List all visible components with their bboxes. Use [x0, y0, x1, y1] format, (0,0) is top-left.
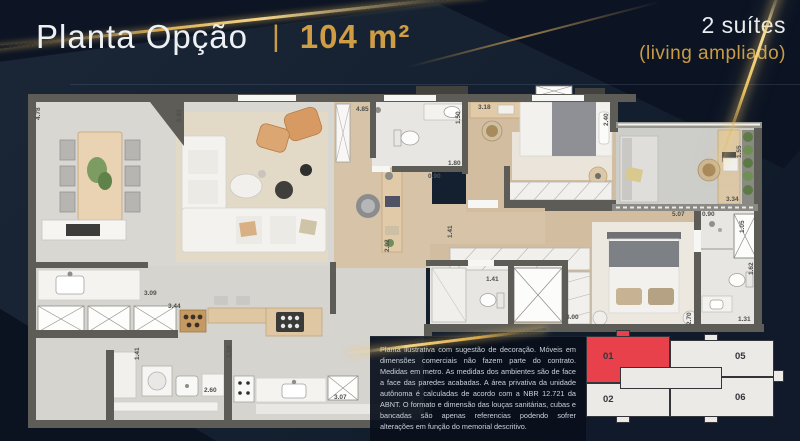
- page: Planta Opção | 104 m² 2 suítes (living a…: [0, 0, 800, 441]
- stove: [234, 376, 254, 402]
- keyplan-core: [620, 367, 722, 389]
- dim-label: 1.41: [134, 347, 141, 360]
- dim-label: 1.50: [455, 111, 462, 124]
- unit-label: 02: [603, 394, 614, 405]
- stool: [214, 296, 228, 305]
- dim-label: 3.34: [726, 196, 739, 203]
- sink: [710, 300, 723, 309]
- toilet: [729, 274, 745, 287]
- laptop: [385, 196, 400, 207]
- unit-label: 05: [735, 351, 746, 362]
- pillow: [648, 288, 674, 305]
- counter: [110, 402, 218, 411]
- tv-sideboard: [42, 220, 126, 240]
- nightstand: [593, 311, 607, 325]
- dim-label: 1.41: [486, 276, 499, 283]
- disclaimer-text: Planta ilustrativa com sugestão de decor…: [380, 345, 576, 431]
- dim-label: 3.00: [566, 314, 579, 321]
- bar-counter: [208, 308, 266, 323]
- fridge: [112, 352, 136, 398]
- dim-label: 1.55: [736, 145, 743, 158]
- toilet: [480, 294, 496, 307]
- toilet: [401, 131, 419, 145]
- dim-label: 1.41: [447, 225, 454, 238]
- keyplan: 01 05 02 06: [586, 330, 800, 441]
- counter: [38, 270, 140, 300]
- dim-label: 3.18: [478, 104, 491, 111]
- wine-shelf: [180, 310, 206, 332]
- pillow: [616, 288, 642, 305]
- side-table: [723, 158, 738, 171]
- dim-label: 0.90: [702, 211, 715, 218]
- unit-label: 01: [603, 351, 614, 362]
- dining-set: [60, 132, 140, 220]
- dim-label: 4.78: [35, 107, 42, 120]
- dim-label: 1.80: [448, 160, 461, 167]
- dim-label: 2.40: [603, 113, 610, 126]
- dim-label: 0.90: [428, 173, 441, 180]
- dim-label: 5.07: [672, 211, 685, 218]
- dim-label: 2.60: [204, 387, 217, 394]
- dim-label: 5.93: [176, 109, 183, 122]
- unit-label: 06: [735, 392, 746, 403]
- disclaimer-box: Planta ilustrativa com sugestão de decor…: [370, 336, 586, 441]
- sofa-pillow: [239, 221, 257, 237]
- wardrobe: [450, 248, 590, 270]
- dim-label: 1.05: [739, 220, 746, 233]
- sofa-pillow: [299, 219, 317, 236]
- dim-label: 1.68: [226, 345, 233, 358]
- dim-label: 1.62: [748, 262, 755, 275]
- hat: [703, 164, 716, 177]
- stool: [236, 296, 250, 305]
- kitchen-sink: [56, 276, 84, 294]
- dim-label: 4.85: [356, 106, 369, 113]
- dim-label: 3.07: [334, 394, 347, 401]
- cooktop: [276, 312, 304, 332]
- kitchen-sink: [282, 384, 306, 398]
- dim-label: 1.31: [738, 316, 751, 323]
- dim-label: 3.09: [144, 290, 157, 297]
- dim-label: 3.44: [168, 303, 181, 310]
- tv: [66, 224, 100, 236]
- headboard: [607, 232, 681, 239]
- floor-lamp: [300, 164, 312, 176]
- shower-head: [709, 221, 715, 227]
- dim-label: 2.02: [384, 239, 391, 252]
- dim-label: 2.70: [686, 312, 693, 325]
